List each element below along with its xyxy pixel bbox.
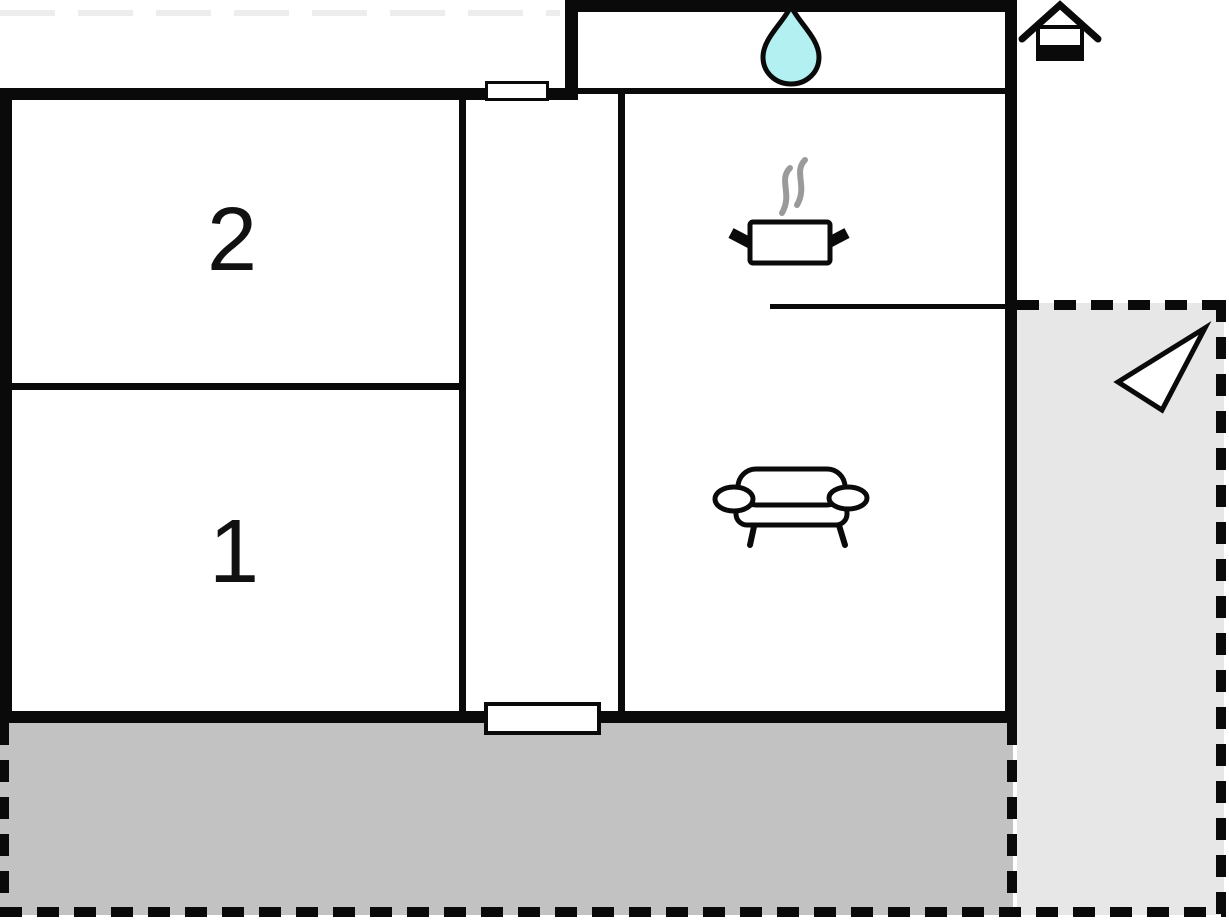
stove-icon: [725, 150, 855, 270]
corridor-right-wall: [618, 94, 625, 711]
kitchen-counter-wall: [770, 304, 1005, 309]
room-divider-wall: [12, 383, 466, 390]
building-interior: [12, 94, 1005, 711]
bathroom-left-wall: [565, 0, 578, 95]
left-outer-wall: [0, 88, 12, 723]
boundary-dash-separator: [1007, 723, 1017, 909]
corridor-left-wall: [459, 98, 466, 711]
sofa-icon: [710, 462, 870, 552]
room-2-label: 2: [157, 190, 307, 290]
bathroom-bottom-wall: [578, 88, 1005, 94]
house-icon: [1020, 2, 1100, 63]
water-drop-icon: [760, 4, 822, 86]
direction-arrow-icon: [1113, 320, 1213, 415]
floor-plan: 2 1: [0, 0, 1229, 922]
entrance-door: [484, 702, 601, 735]
boundary-dash-bottom: [0, 907, 1226, 917]
terrace-area: [0, 723, 1013, 915]
right-outer-wall: [1005, 0, 1017, 723]
boundary-dash-left: [0, 723, 9, 909]
faint-boundary-line: [0, 10, 560, 16]
room-1-label: 1: [159, 502, 309, 602]
window-top: [485, 81, 549, 101]
boundary-dash-top: [1017, 300, 1226, 310]
boundary-dash-right: [1216, 300, 1226, 917]
